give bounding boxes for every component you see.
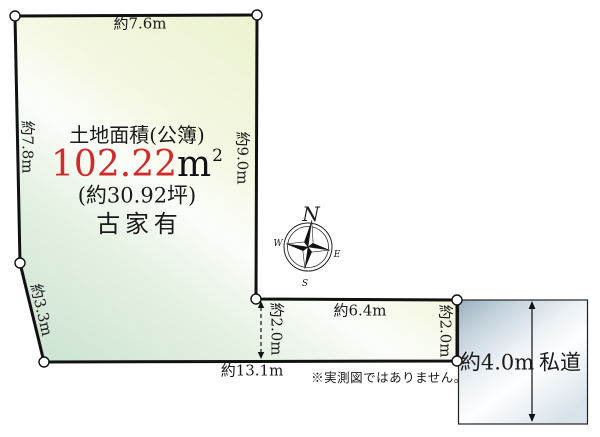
dim-top-label: 約7.6m [113,17,166,32]
compass-west-label: W [273,239,283,249]
dim-bottom-label: 約13.1m [221,364,284,379]
compass-south-label: S [302,279,308,289]
vertex-dot [10,11,20,21]
dim-left-label: 約7.8m [20,120,35,173]
vertex-dot [15,258,25,268]
survey-note: ※実測図ではありません。 [311,372,467,385]
parcel-area-title: 土地面積(公簿) [69,125,205,145]
parcel-tsubo-label: (約30.92坪) [78,186,197,207]
dim-right-label: 約9.0m [235,131,250,184]
parcel-building-label: 古家有 [91,212,182,236]
dim-strip-right-label: 約2.0m [438,304,453,357]
parcel-area-value-line: 102.22m2 [51,147,223,183]
parcel-area-unit-exponent: 2 [212,146,223,166]
compass-east-label: E [333,250,341,260]
vertex-dot [252,10,262,20]
dim-strip-top-label: 約6.4m [333,304,386,319]
compass-north-label: N [301,202,321,226]
private-road-label: 私道 [539,353,581,374]
vertex-dot [39,357,49,367]
parcel-area-value: 102.22 [51,144,177,185]
vertex-dot [251,294,261,304]
dim-strip-inner-label: 約2.0m [269,302,284,355]
road-width-label: 約4.0m [460,353,534,374]
parcel-area-unit: m [177,144,211,185]
land-plot-diagram: N W E S 約7.6m 約7.8m 約9.0m 約3.3m 約13.1m 約… [0,0,600,437]
